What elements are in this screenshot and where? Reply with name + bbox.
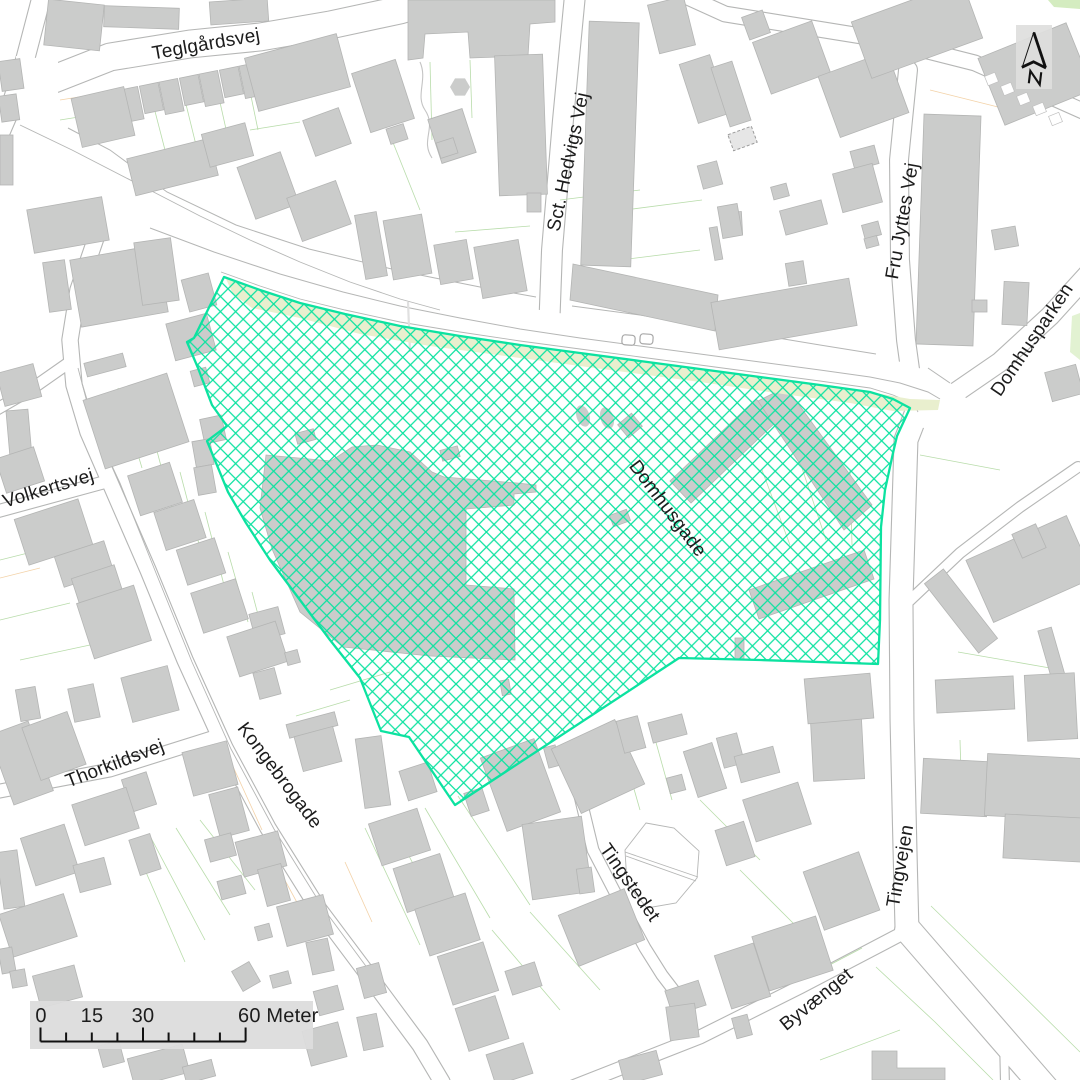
svg-text:60 Meter: 60 Meter xyxy=(238,1005,319,1027)
svg-text:0: 0 xyxy=(35,1005,46,1027)
svg-text:30: 30 xyxy=(132,1005,155,1027)
svg-text:15: 15 xyxy=(81,1005,104,1027)
